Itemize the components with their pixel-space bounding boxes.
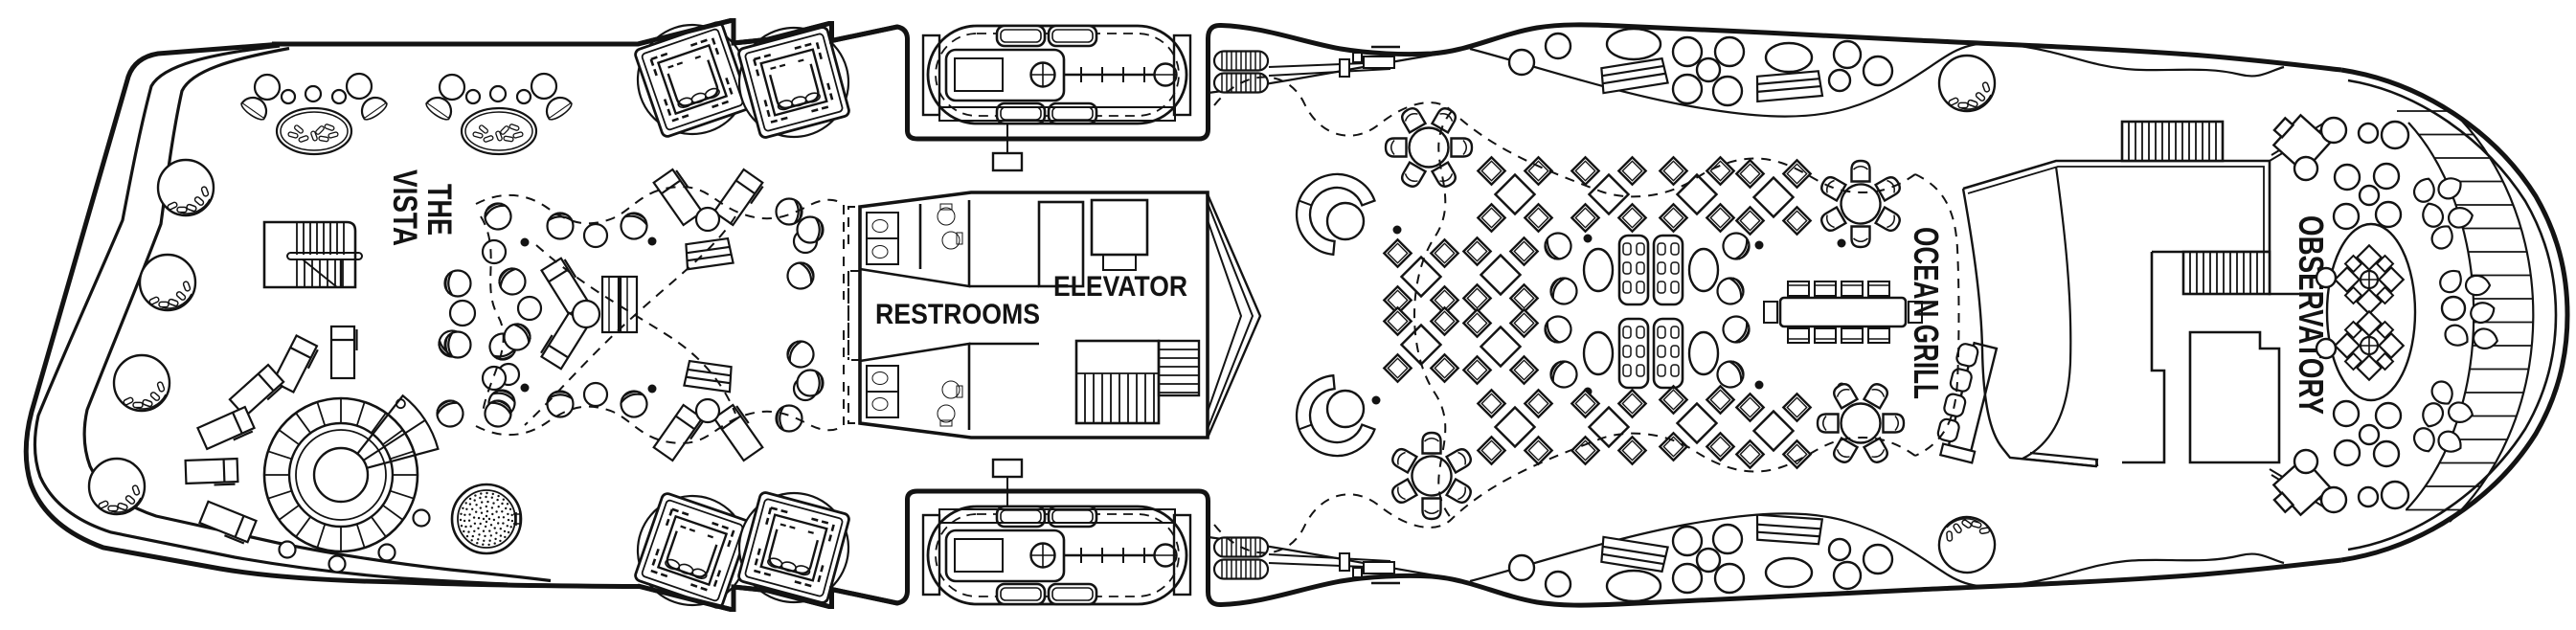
svg-text:OBSERVATORY: OBSERVATORY bbox=[2292, 215, 2331, 415]
svg-text:ELEVATOR: ELEVATOR bbox=[1053, 271, 1187, 303]
svg-text:RESTROOMS: RESTROOMS bbox=[875, 299, 1040, 330]
svg-text:VISTA: VISTA bbox=[386, 169, 423, 246]
svg-text:THE: THE bbox=[420, 184, 458, 236]
svg-text:OCEAN GRILL: OCEAN GRILL bbox=[1907, 227, 1946, 399]
